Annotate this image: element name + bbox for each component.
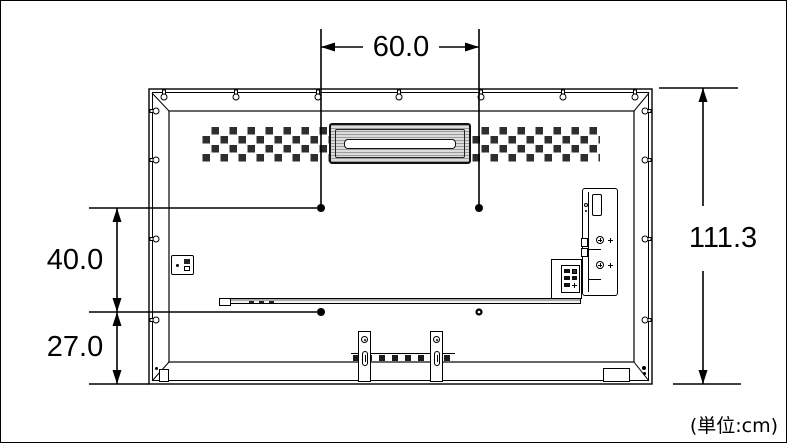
- vesa-hole-top-right: [475, 204, 483, 212]
- tv-rear-dimension-diagram: 60.0 40.0 27.0 111.3 (単位:cm): [0, 0, 787, 443]
- vesa-hole-center: [478, 311, 481, 314]
- arrowhead-down: [113, 370, 122, 384]
- vesa-holes: [317, 204, 483, 316]
- arrowhead-up: [699, 88, 708, 102]
- arrowhead-up: [113, 312, 122, 326]
- arrowhead-left: [321, 43, 335, 52]
- dimension-40: [89, 208, 317, 312]
- vesa-hole-bottom-left: [317, 308, 325, 316]
- units-note: (単位:cm): [690, 411, 778, 438]
- arrowhead-right: [465, 43, 479, 52]
- dimension-40-label: 40.0: [39, 244, 111, 276]
- arrowhead-up: [113, 208, 122, 222]
- dimension-60-label: 60.0: [363, 31, 439, 63]
- dimension-111-label: 111.3: [661, 222, 785, 254]
- dimension-27-label: 27.0: [39, 331, 111, 363]
- arrowhead-down: [699, 370, 708, 384]
- arrowhead-down: [113, 298, 122, 312]
- vesa-hole-top-left: [317, 204, 325, 212]
